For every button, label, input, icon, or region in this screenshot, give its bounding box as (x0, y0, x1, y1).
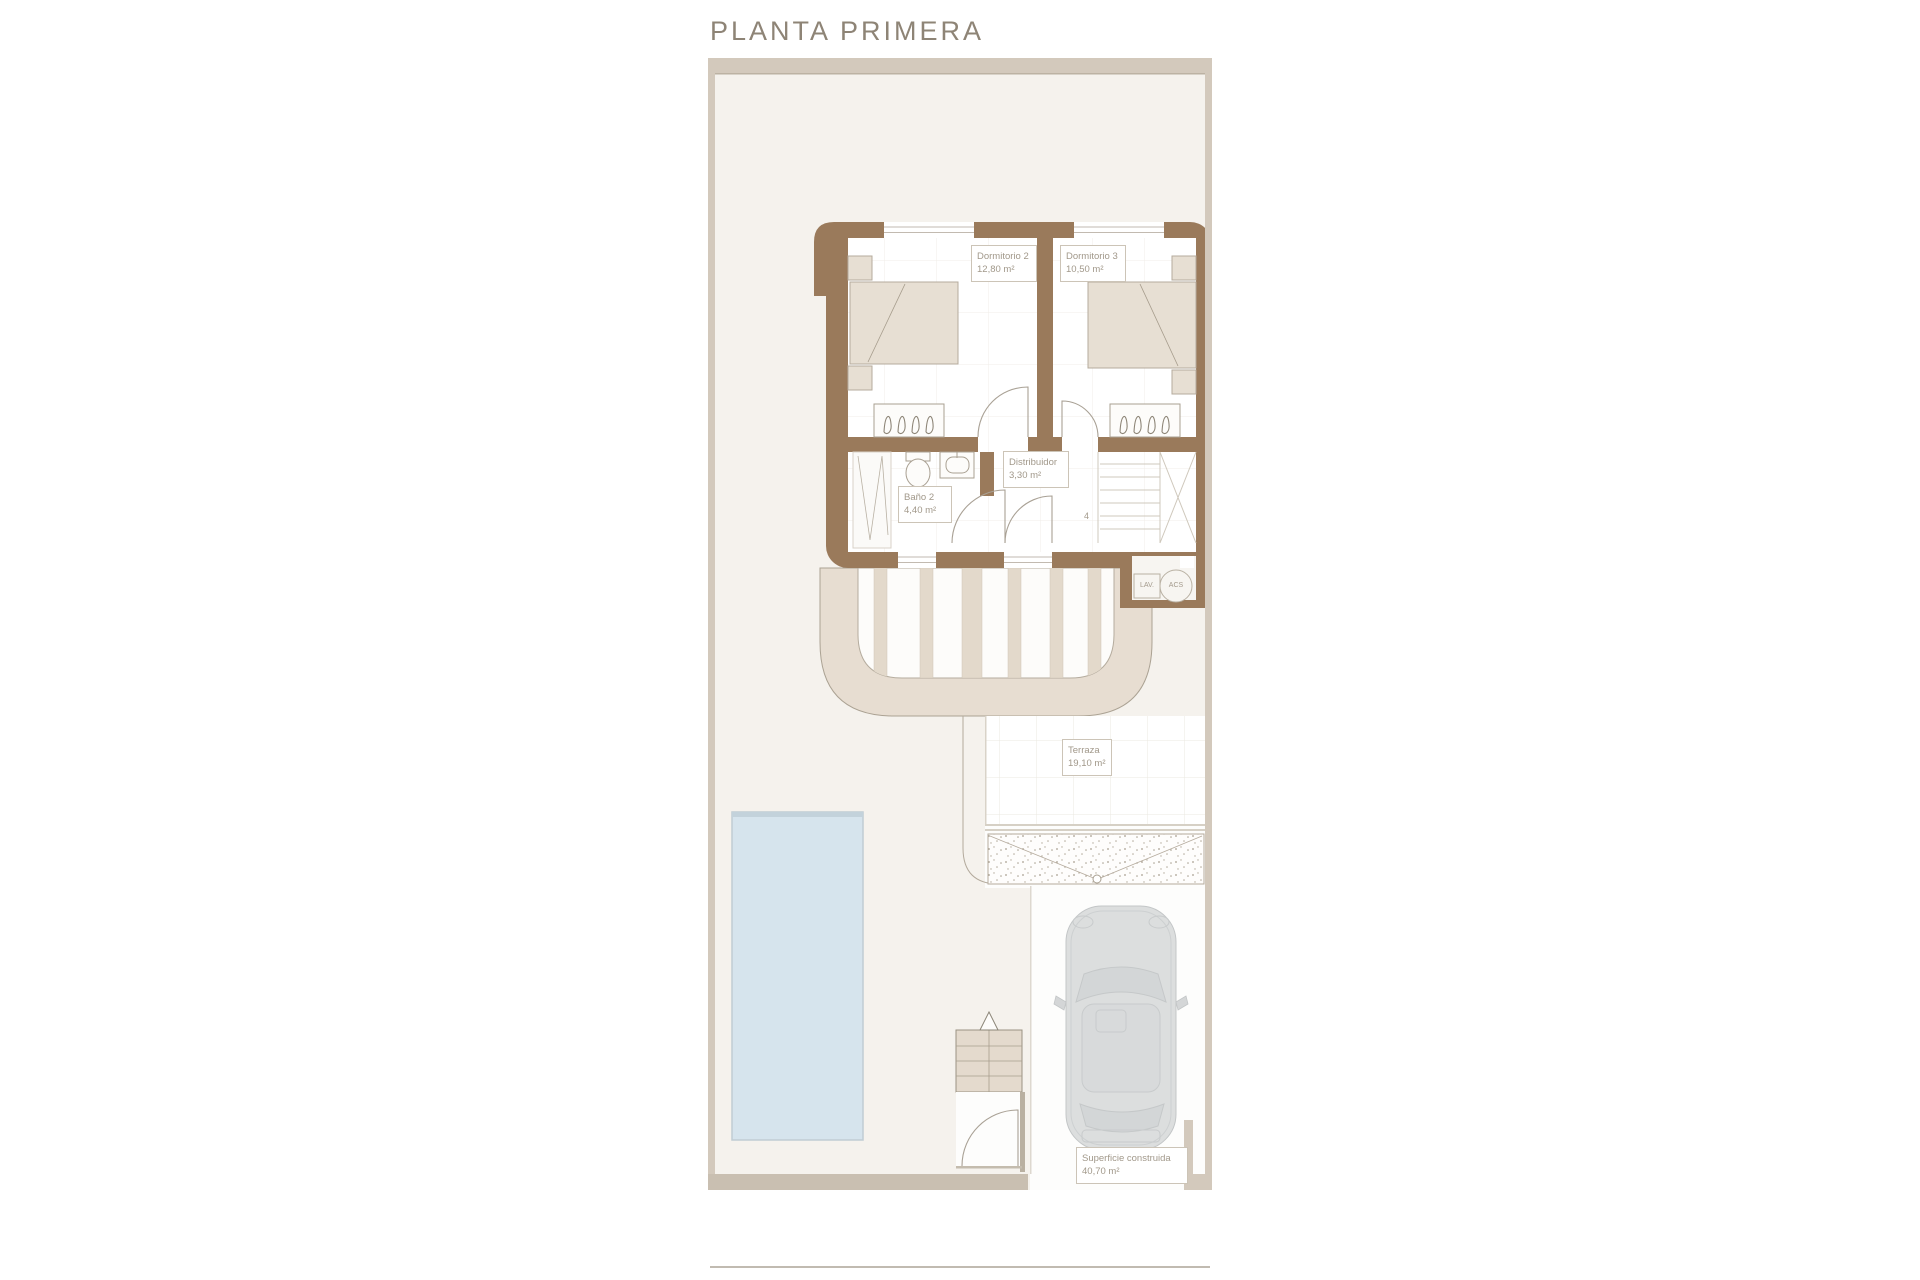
drain (1093, 875, 1101, 883)
nightstand (1172, 256, 1196, 280)
floor-plan-drawing (0, 0, 1920, 1280)
pool (732, 812, 863, 1140)
car (1054, 906, 1188, 1150)
wardrobe-right (1110, 404, 1180, 437)
acs-label: ACS (1163, 582, 1189, 589)
gravel-bed (988, 834, 1204, 884)
utility-room (1120, 552, 1212, 608)
nightstand (848, 366, 872, 390)
built-area-label: Superficie construida 40,70 m² (1076, 1147, 1188, 1184)
wardrobe-left (874, 404, 944, 437)
bottom-divider (710, 1266, 1210, 1268)
sink (940, 452, 974, 478)
exterior-stairs (956, 1012, 1025, 1172)
room-label-distribuidor: Distribuidor 3,30 m² (1003, 451, 1069, 488)
floor-plan-page: PLANTA PRIMERA (0, 0, 1920, 1280)
nightstand (1172, 370, 1196, 394)
room-label-dormitorio-3: Dormitorio 3 10,50 m² (1060, 245, 1126, 282)
toilet (906, 452, 930, 487)
nightstand (848, 256, 872, 280)
stair-count-label: 4 (1084, 511, 1089, 521)
room-label-terraza: Terraza 19,10 m² (1062, 739, 1112, 776)
lav-label: LAV. (1135, 582, 1159, 589)
room-label-dormitorio-2: Dormitorio 2 12,80 m² (971, 245, 1037, 282)
room-label-bano-2: Baño 2 4,40 m² (898, 486, 952, 523)
